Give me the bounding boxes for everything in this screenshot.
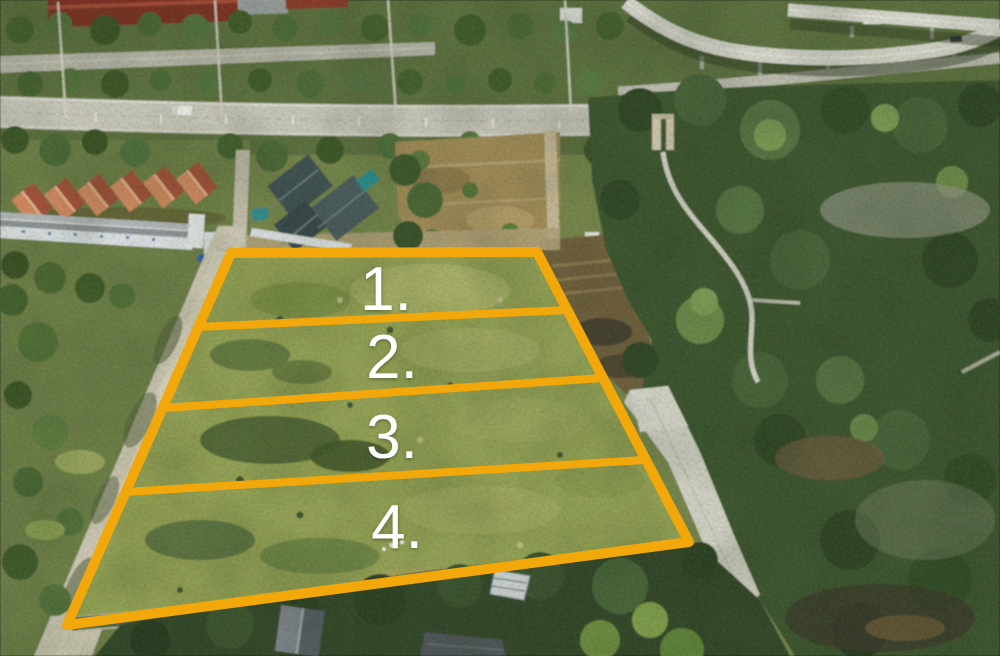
- aerial-photo-canvas: 1. 2. 3. 4.: [0, 0, 1000, 656]
- aerial-photo: 1. 2. 3. 4.: [0, 0, 1000, 656]
- plot-label-4: 4.: [371, 493, 423, 562]
- plot-label-2: 2.: [366, 323, 418, 392]
- plot-label-1: 1.: [360, 255, 412, 324]
- photo-scene: [0, 0, 1000, 656]
- photo-grain-light: [0, 0, 1000, 656]
- plot-label-3: 3.: [366, 403, 418, 472]
